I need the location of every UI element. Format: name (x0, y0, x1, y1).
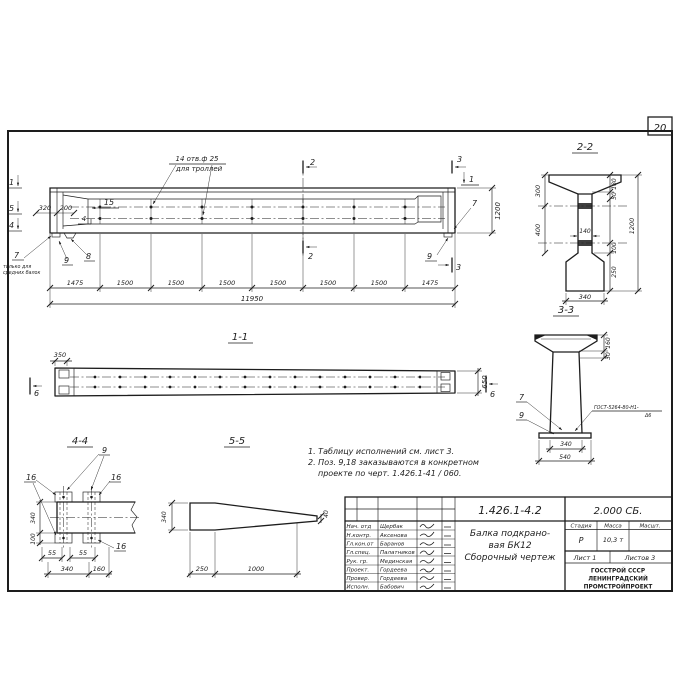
cut-label-2-bottom: 2 (308, 252, 313, 261)
dim-160: 160 (93, 565, 105, 573)
name-6: Гордеева (380, 568, 408, 574)
role-4: Гл.спец. (347, 550, 371, 556)
dim-55-a: 55 (48, 549, 56, 557)
dim-30: 30 (605, 352, 612, 360)
dim-100-view4: 100 (30, 533, 37, 545)
role-1: Нач. отд (347, 524, 372, 530)
name-7: Гордеева (380, 576, 408, 582)
dim-180: 180 (611, 178, 618, 190)
left-note-line2: средних балок (3, 270, 40, 276)
dim-segment-5: 1500 (270, 279, 287, 287)
view-marker-5: 5 (9, 204, 14, 213)
role-2: Н.контр. (347, 533, 372, 539)
view-4-4-title: 4-4 (72, 436, 88, 447)
view-5-5-title: 5-5 (229, 436, 245, 447)
dim-250-view5: 250 (196, 565, 208, 573)
org-line3: ПРОМСТРОЙПРОЕКТ (584, 583, 653, 591)
dim-250: 250 (611, 266, 618, 278)
pos-15: 15 (104, 198, 114, 207)
dim-segment-7: 1500 (371, 279, 388, 287)
dim-160: 160 (605, 337, 612, 349)
doc-number: 1.426.1-4.2 (478, 504, 541, 517)
view-marker-4: 4 (9, 221, 14, 230)
stage-value: Р (579, 536, 584, 545)
dim-segment-4: 1500 (219, 279, 236, 287)
name-5: Мединская (380, 559, 413, 565)
dim-55-b: 55 (79, 549, 87, 557)
doc-code: 2.000 СБ. (594, 506, 643, 517)
dim-1200-elevation: 1200 (494, 202, 502, 220)
dim-340-vert: 340 (30, 512, 37, 524)
paper-background (0, 0, 700, 700)
col-scale: Масшт. (639, 524, 660, 530)
org-line1: ГОССТРОЙ СССР (591, 567, 646, 575)
pos-9-view4: 9 (102, 446, 107, 455)
dim-340-section2: 340 (579, 293, 591, 301)
engineering-drawing: 20 (0, 0, 700, 700)
pos-9-section3: 9 (519, 411, 524, 420)
name-8: Бабович (380, 585, 405, 591)
dim-400: 400 (534, 224, 542, 236)
dim-540: 540 (559, 454, 571, 461)
sheets-label: Листов 3 (624, 554, 655, 562)
note-line-1: 1. Таблицу исполнений см. лист 3. (308, 447, 454, 456)
dim-1200-section: 1200 (628, 218, 636, 235)
dim-650: 650 (481, 375, 489, 389)
dim-300: 300 (534, 185, 542, 197)
name-2: Аксенова (379, 533, 408, 539)
section-2-2-title: 2-2 (577, 142, 593, 153)
cut-label-2-top: 2 (310, 158, 315, 167)
cut-label-3-top: 3 (457, 155, 462, 164)
pos-9-left: 9 (64, 256, 69, 265)
dim-350: 350 (54, 351, 66, 359)
role-5: Рук. гр. (347, 559, 369, 565)
drawing-name-line3: Сборочный чертеж (464, 553, 556, 563)
dim-200: 200 (60, 204, 72, 212)
role-3: Гл.кон.от (347, 542, 375, 548)
note-line-3: проекте по черт. 1.426.1-41 / 060. (318, 469, 461, 478)
dim-total: 11950 (241, 295, 264, 303)
weld-note-line1: ГОСТ-5264-80-Н1- (594, 405, 639, 411)
drawing-name-line1: Балка подкрано- (470, 529, 550, 539)
weld-note-line2: Δ6 (644, 413, 651, 419)
dim-140: 140 (579, 228, 591, 235)
pos-16-left: 16 (26, 473, 36, 482)
col-mass: Масса (604, 524, 622, 530)
cut-label-6-left: 6 (34, 389, 39, 398)
cut-label-3-bottom: 3 (456, 263, 461, 272)
dim-50: 50 (611, 192, 618, 200)
dim-1000: 1000 (248, 565, 265, 573)
dim-segment-2: 1500 (117, 279, 134, 287)
holes-note-line2: для троллей (175, 165, 223, 173)
dim-segment-3: 1500 (168, 279, 185, 287)
sheet-label: Лист 1 (573, 554, 597, 562)
dim-100: 100 (611, 242, 618, 254)
pos-8: 8 (86, 252, 91, 261)
org-line2: ЛЕНИНГРАДСКИЙ (588, 575, 648, 583)
section-1-1-title: 1-1 (232, 332, 248, 343)
role-7: Провер. (347, 576, 370, 582)
name-4: Палатников (380, 550, 415, 556)
scanned-drawing-sheet: 20 (0, 0, 700, 700)
dim-340-section3: 340 (560, 441, 572, 448)
sheet-number: 20 (654, 123, 667, 134)
mass-value: 10,3 т (603, 536, 624, 544)
left-note-line1: только для (3, 265, 31, 270)
notes: 1. Таблицу исполнений см. лист 3. 2. Поз… (308, 447, 479, 478)
dim-segment-1: 1475 (67, 279, 84, 287)
section-3-3-title: 3-3 (558, 305, 574, 316)
role-8: Исполн. (347, 585, 370, 591)
cut-label-6-right: 6 (490, 390, 495, 399)
dim-340-bottom: 340 (61, 565, 73, 573)
pos-4: 4 (82, 215, 86, 223)
dim-segment-8: 1475 (422, 279, 439, 287)
pos-16-bottom: 16 (116, 542, 126, 551)
name-1: Щербак (380, 524, 404, 530)
holes-note-line1: 14 отв.ф 25 (176, 155, 220, 163)
dim-segment-6: 1500 (320, 279, 337, 287)
view-marker-1-right: 1 (469, 175, 474, 184)
role-6: Проект. (347, 568, 370, 574)
col-stage: Стадия (570, 524, 592, 530)
drawing-name-line2: вая БК12 (488, 541, 531, 551)
pos-9-right: 9 (427, 252, 432, 261)
dim-40: 40 (323, 510, 330, 518)
dim-340-view5: 340 (161, 511, 168, 523)
pos-16-right: 16 (111, 473, 121, 482)
note-line-2: 2. Поз. 9,18 заказываются в конкретном (308, 458, 479, 467)
view-marker-1: 1 (9, 178, 14, 187)
dim-320: 320 (39, 204, 51, 212)
name-3: Баранов (380, 542, 404, 548)
